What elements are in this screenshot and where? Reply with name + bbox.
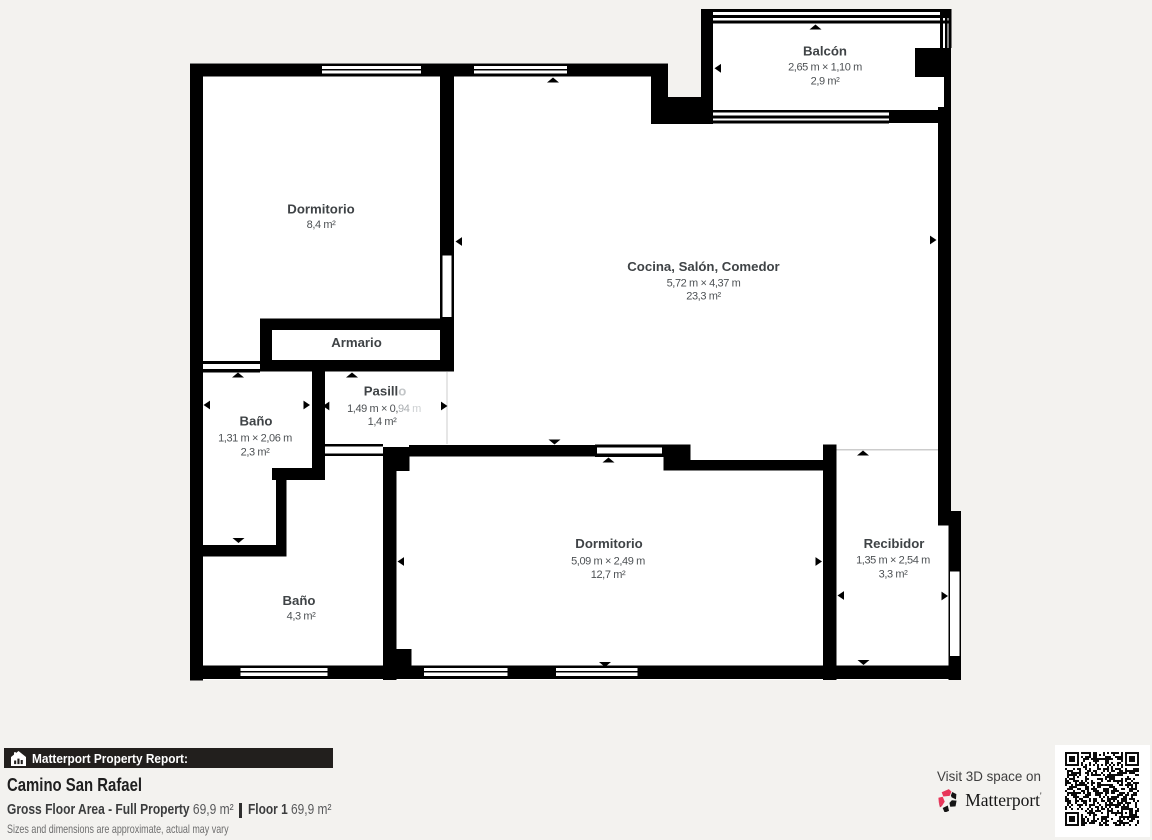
- svg-text:2,3 m²: 2,3 m²: [241, 447, 271, 459]
- svg-text:Dormitorio: Dormitorio: [287, 202, 354, 217]
- svg-text:8,4 m²: 8,4 m²: [307, 219, 337, 231]
- svg-text:1,49 m × 0,94 m: 1,49 m × 0,94 m: [347, 403, 421, 415]
- svg-text:1,35 m × 2,54 m: 1,35 m × 2,54 m: [856, 555, 930, 567]
- svg-text:Cocina, Salón, Comedor: Cocina, Salón, Comedor: [627, 259, 779, 274]
- svg-text:3,3 m²: 3,3 m²: [879, 569, 909, 581]
- svg-text:Dormitorio: Dormitorio: [575, 536, 642, 551]
- svg-text:2,65 m × 1,10 m: 2,65 m × 1,10 m: [788, 61, 862, 73]
- svg-text:1,31 m × 2,06 m: 1,31 m × 2,06 m: [218, 433, 292, 445]
- svg-text:Balcón: Balcón: [803, 43, 847, 58]
- svg-text:23,3 m²: 23,3 m²: [686, 290, 721, 302]
- svg-text:12,7 m²: 12,7 m²: [591, 569, 626, 581]
- svg-text:Armario: Armario: [331, 335, 382, 350]
- svg-text:Recibidor: Recibidor: [864, 536, 925, 551]
- svg-text:Baño: Baño: [240, 414, 273, 429]
- svg-text:5,72 m × 4,37 m: 5,72 m × 4,37 m: [667, 278, 741, 290]
- svg-text:Pasillo: Pasillo: [364, 384, 407, 399]
- svg-text:1,4 m²: 1,4 m²: [368, 416, 398, 428]
- svg-text:5,09 m × 2,49 m: 5,09 m × 2,49 m: [571, 556, 645, 568]
- svg-text:4,3 m²: 4,3 m²: [287, 611, 317, 623]
- svg-text:2,9 m²: 2,9 m²: [811, 75, 841, 87]
- svg-text:Baño: Baño: [283, 593, 316, 608]
